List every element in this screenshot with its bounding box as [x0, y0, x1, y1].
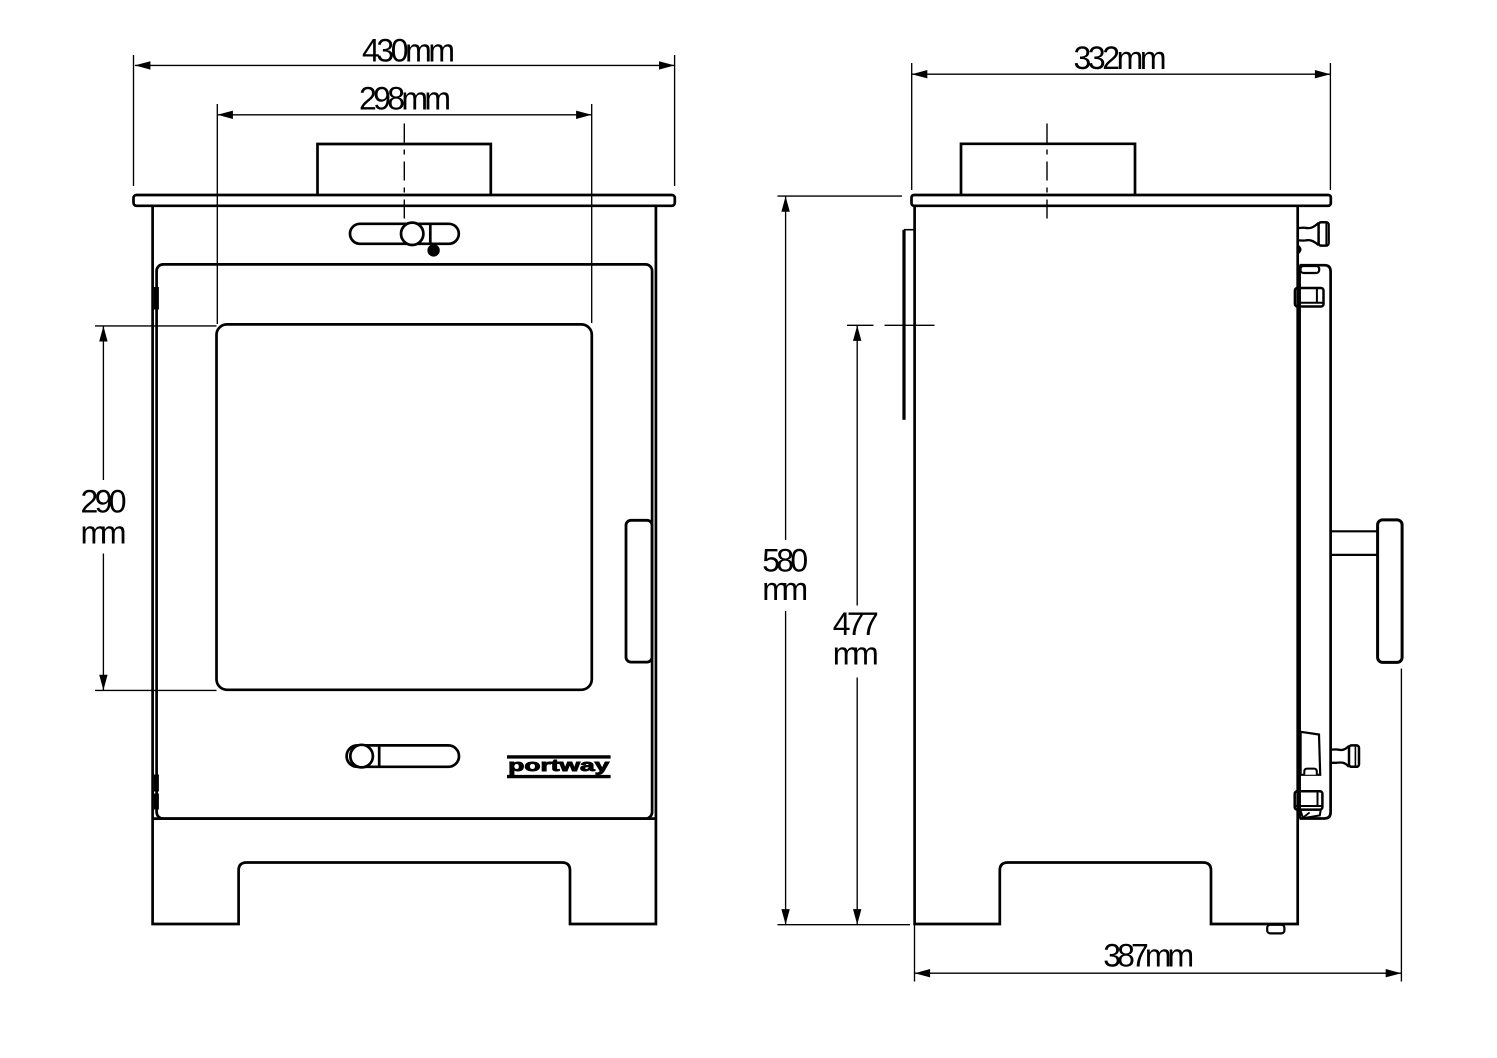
svg-text:mm: mm: [833, 635, 879, 671]
svg-text:portway: portway: [508, 756, 610, 775]
svg-text:mm: mm: [81, 514, 127, 550]
svg-text:mm: mm: [762, 571, 808, 607]
svg-text:430mm: 430mm: [362, 33, 455, 69]
svg-text:298mm: 298mm: [359, 81, 451, 117]
svg-text:387mm: 387mm: [1103, 938, 1194, 974]
svg-text:332mm: 332mm: [1074, 40, 1167, 76]
